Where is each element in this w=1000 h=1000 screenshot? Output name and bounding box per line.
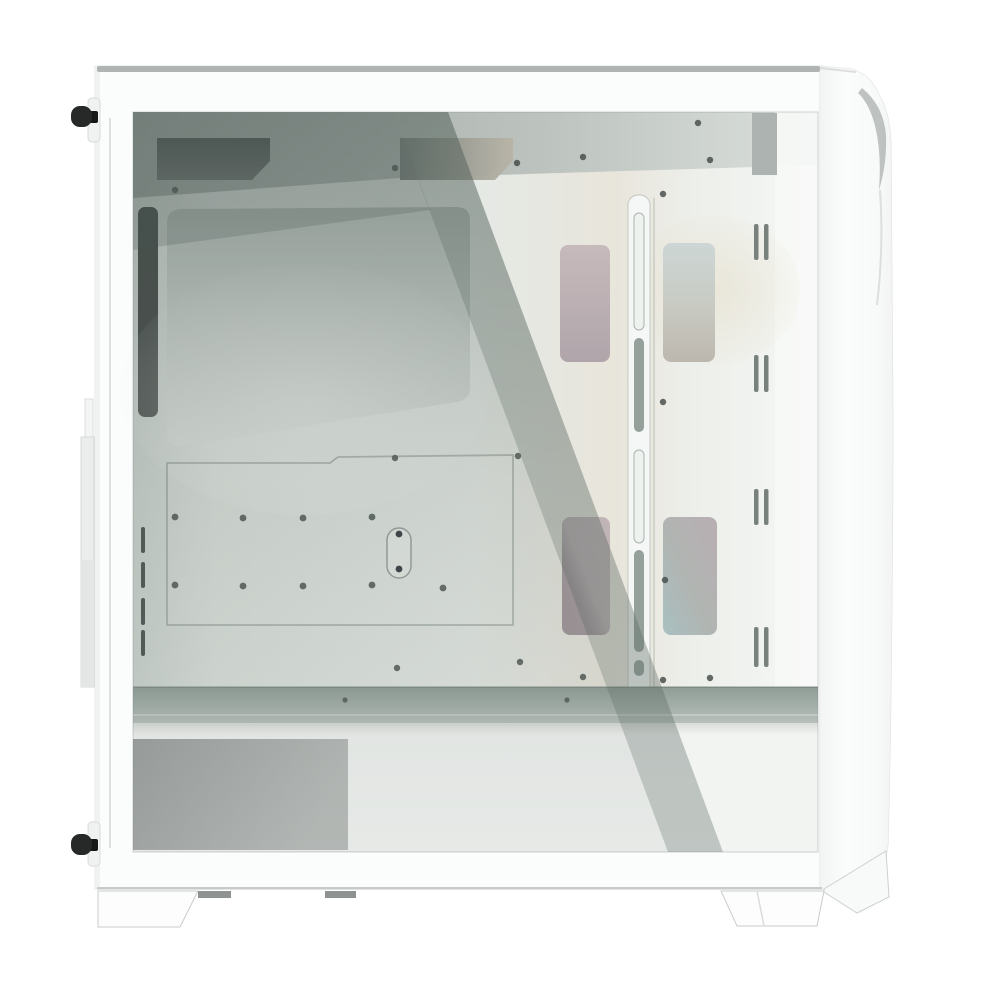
rear-tab bbox=[85, 399, 93, 437]
vent-slot bbox=[754, 489, 759, 525]
screw-hole bbox=[662, 577, 668, 583]
cable-bar-slot-outline bbox=[634, 213, 644, 330]
case-foot bbox=[98, 891, 198, 927]
top-edge-strip bbox=[97, 66, 820, 72]
screw-hole bbox=[514, 160, 520, 166]
case-foot bbox=[721, 891, 824, 926]
vent-slot bbox=[764, 627, 769, 667]
thumbscrew-icon bbox=[71, 834, 92, 855]
pc-case-illustration bbox=[0, 0, 1000, 1000]
screw-hole bbox=[660, 191, 666, 197]
bottom-edge-line bbox=[97, 887, 822, 890]
rear-edge-shade bbox=[95, 66, 100, 889]
vent-slot bbox=[754, 224, 759, 260]
thumbscrew-icon bbox=[71, 106, 92, 127]
vent-slot bbox=[764, 489, 769, 525]
vent-slot bbox=[764, 224, 769, 260]
screw-hole bbox=[707, 157, 713, 163]
cable-grommet bbox=[560, 245, 610, 362]
cable-bar-slot bbox=[634, 338, 644, 432]
front-top-bracket bbox=[752, 113, 777, 175]
under-tab bbox=[325, 891, 356, 898]
glass-panel bbox=[120, 112, 818, 852]
cable-grommet bbox=[663, 243, 715, 362]
vent-slot bbox=[754, 355, 759, 392]
screw-hole bbox=[580, 154, 586, 160]
cable-grommet bbox=[663, 517, 717, 635]
vent-slot bbox=[754, 627, 759, 667]
vent-slot bbox=[764, 355, 769, 392]
under-tab bbox=[198, 891, 231, 898]
screw-hole bbox=[660, 399, 666, 405]
screw-hole bbox=[660, 677, 666, 683]
front-bezel-sheen bbox=[820, 66, 893, 889]
screw-hole bbox=[695, 120, 701, 126]
cable-bar-slot-outline bbox=[634, 450, 644, 543]
product-photo-stage bbox=[0, 0, 1000, 1000]
rear-rail-lower bbox=[81, 560, 94, 687]
case-feet bbox=[98, 891, 824, 927]
screw-hole bbox=[707, 675, 713, 681]
